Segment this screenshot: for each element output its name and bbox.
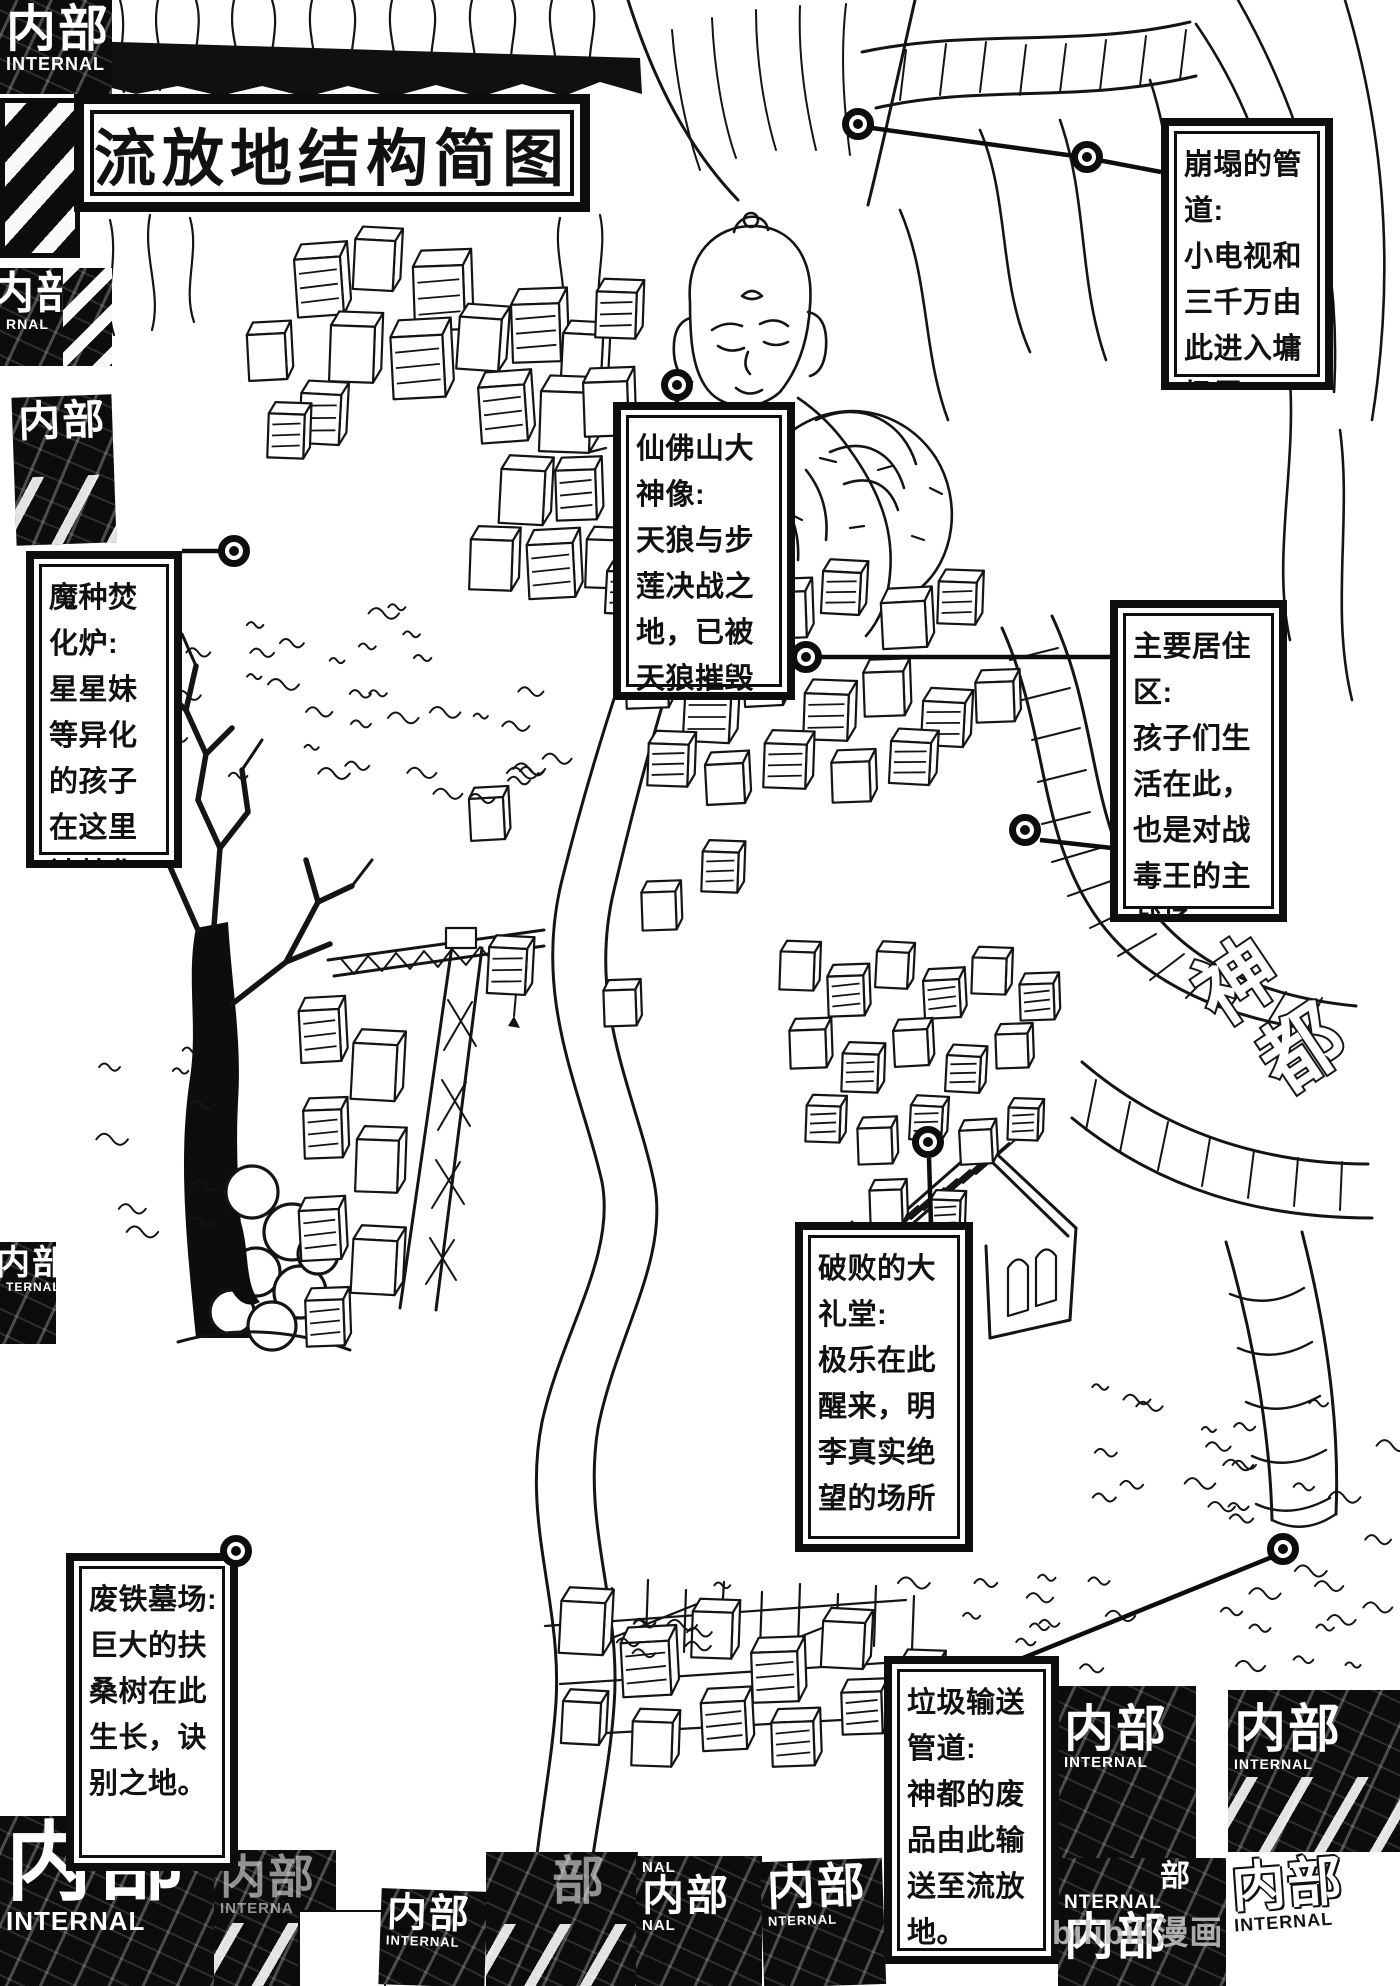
stamp-en-text: INTERNAL bbox=[6, 1908, 208, 1935]
callout-body: 小电视和三千万由此进入墉圾层。 bbox=[1184, 234, 1317, 390]
stamp-stripes bbox=[14, 474, 116, 546]
stamp-cn-text: 内部 bbox=[1064, 1704, 1190, 1755]
map-marker-collapsed-pipe-a bbox=[842, 108, 874, 140]
callout-body: 巨大的扶桑树在此生长，诀别之地。 bbox=[89, 1623, 222, 1807]
internal-stamp: 部 bbox=[486, 1852, 638, 1986]
callout-garbage-pipe: 垃圾输送管道: 神都的废品由此输送至流放地。 bbox=[884, 1656, 1059, 1964]
stamp-en-text: TERNAL bbox=[6, 1281, 50, 1293]
callout-title: 垃圾输送管道: bbox=[907, 1680, 1043, 1772]
stamp-cn-text: 部 bbox=[552, 1856, 632, 1909]
callout-incinerator: 魔种焚化炉: 星星妹等异化的孩子在这里被焚化。 bbox=[26, 551, 182, 868]
callout-title: 仙佛山大神像: bbox=[636, 426, 779, 518]
internal-stamp: 内部 INTERNAL bbox=[1058, 1686, 1196, 1858]
callout-buddha-statue: 仙佛山大神像: 天狼与步莲决战之地，已被天狼摧毁。 bbox=[613, 402, 795, 700]
map-marker-incinerator bbox=[218, 535, 250, 567]
stamp-en-text: INTERNAL bbox=[1064, 1755, 1190, 1770]
stamp-cn-text: 内部 bbox=[642, 1875, 756, 1918]
hazard-stripes bbox=[0, 98, 80, 258]
map-marker-scrap-graveyard bbox=[220, 1535, 252, 1567]
blank-label bbox=[298, 1910, 386, 1986]
callout-title: 崩塌的管道: bbox=[1184, 142, 1317, 234]
callout-title: 废铁墓场: bbox=[89, 1577, 222, 1623]
stamp-cn-text: 内部 bbox=[18, 399, 107, 445]
stamp-cn-text: 内部 bbox=[1234, 1704, 1394, 1757]
stamp-cn-text: 内部 bbox=[6, 4, 106, 55]
internal-stamp: 内部 bbox=[11, 394, 116, 545]
internal-stamp: NAL 内部 NAL bbox=[636, 1856, 762, 1986]
callout-title: 魔种焚化炉: bbox=[49, 575, 166, 667]
stamp-en-text: NTERNAL bbox=[768, 1911, 878, 1928]
callout-collapsed-pipe: 崩塌的管道: 小电视和三千万由此进入墉圾层。 bbox=[1161, 118, 1333, 390]
internal-stamp: 内部 INTERNAL bbox=[0, 0, 112, 94]
stamp-stripes bbox=[486, 1924, 638, 1986]
callout-title: 主要居住区: bbox=[1133, 624, 1271, 716]
map-marker-residential-b bbox=[1009, 814, 1041, 846]
stamp-cn-text: 内部 bbox=[766, 1862, 878, 1915]
internal-stamp: 内部 INTERNAL bbox=[1228, 1690, 1400, 1852]
page-title: 流放地结构简图 bbox=[94, 108, 570, 198]
stamp-stripes bbox=[63, 268, 112, 366]
stamp-cn-text: 内部 bbox=[0, 1246, 50, 1281]
callout-body: 天狼与步莲决战之地，已被天狼摧毁。 bbox=[636, 518, 779, 700]
stamp-en-text: NAL bbox=[642, 1918, 756, 1933]
internal-stamp: 内部 INTERNAL bbox=[1224, 1846, 1400, 1986]
map-marker-buddha-statue bbox=[661, 369, 693, 401]
stamp-stripes bbox=[1228, 1777, 1400, 1852]
internal-stamp: 内部 NTERNAL bbox=[760, 1858, 886, 1986]
callout-residential: 主要居住区: 孩子们生活在此，也是对战毒王的主战场。 bbox=[1110, 600, 1287, 922]
stamp-en-text: INTERNAL bbox=[1234, 1757, 1394, 1771]
map-marker-residential-a bbox=[790, 641, 822, 673]
comic-map-page: 神都 流放地结构简图 崩塌的管道: 小电视和三千万由此进入墉圾层。 魔种焚化炉:… bbox=[0, 0, 1400, 1986]
map-marker-grand-hall bbox=[912, 1126, 944, 1158]
internal-stamp: 内部 RNAL bbox=[0, 268, 112, 366]
callout-body: 孩子们生活在此，也是对战毒王的主战场。 bbox=[1133, 716, 1271, 922]
callout-grand-hall: 破败的大礼堂: 极乐在此醒来，明李真实绝望的场所。 bbox=[795, 1222, 973, 1552]
stamp-cn-text: 部 bbox=[1160, 1862, 1220, 1893]
page-title-box: 流放地结构简图 bbox=[74, 94, 590, 212]
internal-stamp: 内部 INTERNAL bbox=[378, 1888, 487, 1986]
callout-scrap-graveyard: 废铁墓场: 巨大的扶桑树在此生长，诀别之地。 bbox=[66, 1553, 238, 1871]
callout-body: 星星妹等异化的孩子在这里被焚化。 bbox=[49, 667, 166, 868]
callout-body: 神都的废品由此输送至流放地。 bbox=[907, 1772, 1043, 1956]
stamp-cn-text: 内部 bbox=[386, 1892, 481, 1936]
callout-body: 极乐在此醒来，明李真实绝望的场所。 bbox=[818, 1338, 957, 1552]
callout-title: 破败的大礼堂: bbox=[818, 1246, 957, 1338]
internal-stamp: 内部 TERNAL bbox=[0, 1242, 56, 1344]
bilibili-manga-watermark: bilibili漫画 bbox=[1052, 1906, 1223, 1954]
stamp-en-text: INTERNAL bbox=[6, 55, 106, 73]
map-marker-collapsed-pipe-b bbox=[1071, 141, 1103, 173]
map-marker-garbage-pipe bbox=[1267, 1533, 1299, 1565]
